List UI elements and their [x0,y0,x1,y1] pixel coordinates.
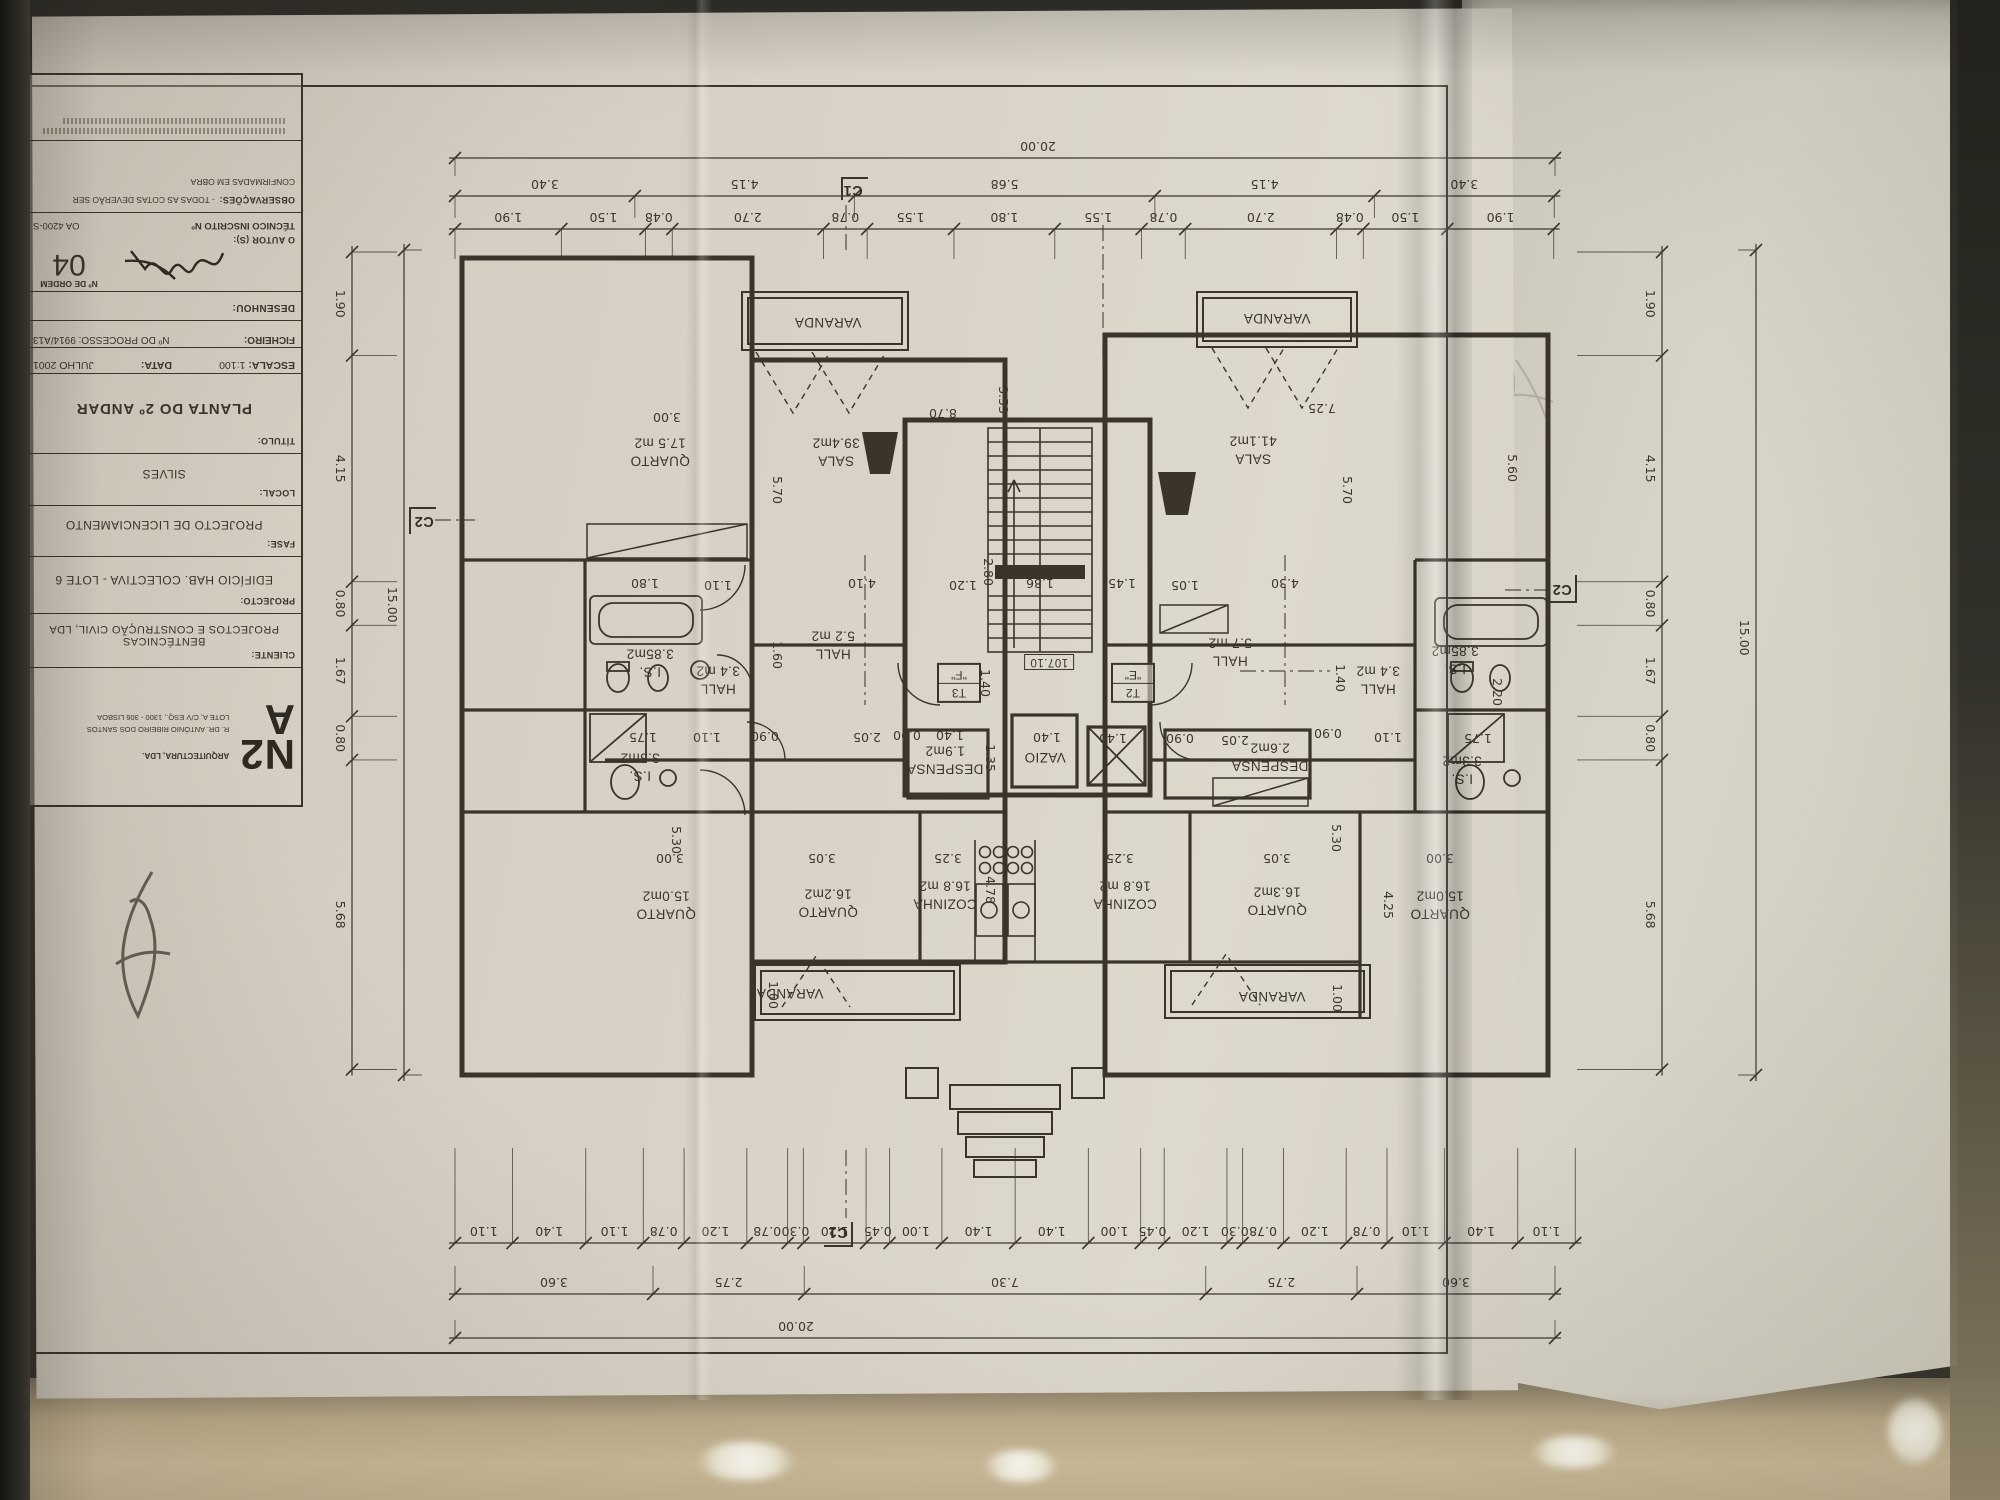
title-block: N2A ARQUITECTURA, LDA. R. DR. ANTÓNIO RI… [25,73,303,807]
fase-label: FASE: [267,539,295,549]
room-label-despensa-1-9: DESPENSA1.9m2 [907,742,984,777]
fase-value: PROJECTO DE LICENCIAMENTO [33,518,295,532]
room-label-is-3-3-left: I.S.3.3m2 [620,749,660,784]
title-block-row-projecto: PROJECTO: EDIFÍCIO HAB. COLECTIVA - LOTE… [27,556,301,613]
title-block-row-logo: N2A ARQUITECTURA, LDA. R. DR. ANTÓNIO RI… [27,667,301,805]
escala-label: ESCALA: [248,359,295,371]
observacoes-label: OBSERVAÇÕES: [219,195,295,205]
titulo-label: TÍTULO: [257,436,295,446]
processo-value: Nº DO PROCESSO: 9914/A13 [33,323,169,345]
level-label: 107.10 [1024,654,1074,670]
room-label-varanda-top-right: VARANDA [1243,309,1310,327]
title-block-row-microprint [27,88,301,140]
data-value: JULHO 2001 [33,350,94,371]
n2a-logo: N2A [239,702,295,771]
room-label-quarto-16-2: QUARTO16.2m2 [798,885,858,920]
tecnico-label: TÉCNICO INSCRITO Nº [191,215,295,231]
photo-left-edge [0,0,30,1500]
room-label-quarto-16-3: QUARTO16.3m2 [1247,883,1307,918]
room-label-cozinha-right: COZINHA16.8 m2 [1093,877,1157,912]
projecto-value: EDIFÍCIO HAB. COLECTIVA - LOTE 6 [33,573,295,587]
room-label-quarto-15-left: QUARTO15.0m2 [636,887,696,922]
room-label-sala-41-1: SALA41.1m2 [1229,432,1276,467]
signature [113,239,233,289]
unit-tag-t2-e: T2"E" [1111,663,1155,703]
room-label-is-3-85-right: I.S.3.85m2 [1431,642,1478,677]
photo-right-edge [1950,0,2000,1500]
room-label-varanda-top-left: VARANDA [794,313,861,331]
room-label-hall-5-2: HALL5.2 m2 [811,627,855,662]
room-label-hall-5-7: HALL5.7 m2 [1208,634,1252,669]
room-label-hall-3-4-left: HALL3.4 m2 [696,662,740,697]
microprint-line [62,118,285,124]
projecto-label: PROJECTO: [240,596,295,606]
escala-value: 1:100 [219,359,245,371]
data-label: DATA: [141,350,172,371]
unit-tag-t3-f: T3"F" [937,663,981,703]
microprint-line [41,128,285,134]
room-label-is-3-3-right: I.S.3.3m2 [1442,752,1482,787]
room-label-despensa-2-6: DESPENSA2.6m2 [1232,739,1309,774]
autor-label: O AUTOR (S): [233,235,295,245]
title-block-row-cliente: CLIENTE: BENTÉCNICASPROJECTOS E CONSTRUÇ… [27,613,301,667]
title-block-row-autor: O AUTOR (S): Nº DE ORDEM 04 [27,233,301,291]
title-block-row-escala: ESCALA: 1:100 DATA: JULHO 2001 [27,347,301,373]
cliente-label: CLIENTE: [251,650,295,660]
photo-of-floor-plan-blueprint: 20.003.404.155.684.153.401.901.500.482.7… [0,0,2000,1500]
tecnico-value: OA 4200-S [33,215,79,231]
room-label-varanda-bottom-right: VARANDA [1238,987,1305,1005]
logo-subtitle: ARQUITECTURA, LDA. [87,749,229,761]
cliente-value: BENTÉCNICASPROJECTOS E CONSTRUÇÃO CIVIL,… [33,623,295,647]
section-marker-c1-0: C1 [843,182,863,198]
room-label-hall-3-4-right: HALL3.4 m2 [1356,662,1400,697]
room-label-vazio: VAZIO [1024,748,1066,766]
desenhou-label: DESENHOU: [232,302,295,313]
address-line: LOTE A, C/V ESQ., 1300 - 306 LISBOA [87,712,229,723]
address-line: R. DR. ANTÓNIO RIBEIRO DOS SANTOS [87,724,229,735]
title-block-row-ficheiro: FICHEIRO: Nº DO PROCESSO: 9914/A13 [27,320,301,347]
title-block-row-observacoes: OBSERVAÇÕES: - TODAS AS COTAS DEVERÃO SE… [27,140,301,212]
room-label-quarto-17-5: QUARTO17.5 m2 [630,434,690,469]
title-block-row-fase: FASE: PROJECTO DE LICENCIAMENTO [27,505,301,556]
title-block-row-local: LOCAL: SILVES [27,453,301,505]
ordem-value: 04 [33,249,105,279]
titulo-value: PLANTA DO 2º ANDAR [33,400,295,417]
room-label-sala-39-4: SALA39.4m2 [812,434,859,469]
title-block-row-desenhou: DESENHOU: [27,291,301,320]
section-marker-c1-1: C1 [828,1224,848,1240]
section-marker-c2-2: C2 [414,513,434,529]
room-label-is-3-85-left: I.S.3.85m2 [626,645,673,680]
title-block-row-tecnico: TÉCNICO INSCRITO Nº OA 4200-S [27,212,301,233]
local-value: SILVES [33,467,295,481]
room-label-varanda-bottom-left: VARANDA [756,984,823,1002]
ficheiro-label: FICHEIRO: [244,323,295,345]
section-marker-c2-3: C2 [1552,581,1572,597]
room-label-quarto-15-right: QUARTO15.0m2 [1410,887,1470,922]
local-label: LOCAL: [259,488,295,498]
title-block-row-titulo: TÍTULO: PLANTA DO 2º ANDAR [27,373,301,453]
room-label-cozinha-left: COZINHA16.8 m2 [913,877,977,912]
